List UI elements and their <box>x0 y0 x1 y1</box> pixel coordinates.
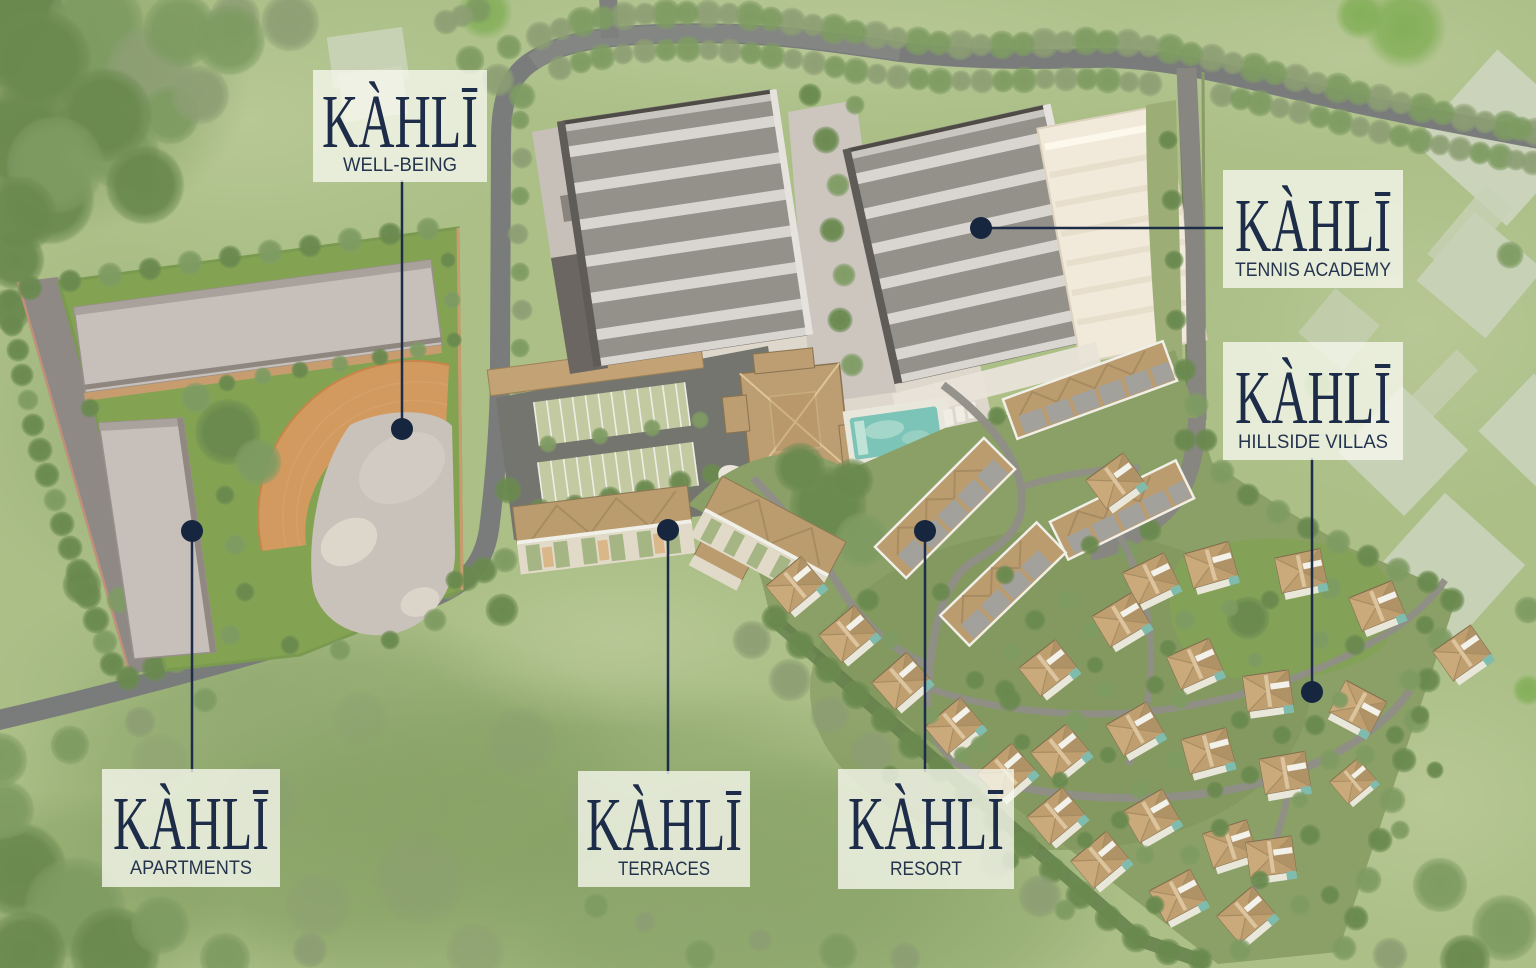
svg-text:HILLSIDE VILLAS: HILLSIDE VILLAS <box>1238 432 1388 453</box>
svg-text:KÀHLĪ: KÀHLĪ <box>1235 356 1391 440</box>
svg-text:KÀHLĪ: KÀHLĪ <box>113 782 269 866</box>
svg-text:TERRACES: TERRACES <box>618 859 710 880</box>
svg-text:KÀHLĪ: KÀHLĪ <box>586 783 742 867</box>
svg-text:APARTMENTS: APARTMENTS <box>130 858 252 879</box>
svg-text:RESORT: RESORT <box>890 859 962 880</box>
svg-text:KÀHLĪ: KÀHLĪ <box>322 80 478 164</box>
svg-text:KÀHLĪ: KÀHLĪ <box>1235 184 1391 268</box>
svg-text:KÀHLĪ: KÀHLĪ <box>848 782 1004 866</box>
svg-text:WELL-BEING: WELL-BEING <box>343 155 457 176</box>
svg-text:TENNIS ACADEMY: TENNIS ACADEMY <box>1235 260 1391 281</box>
